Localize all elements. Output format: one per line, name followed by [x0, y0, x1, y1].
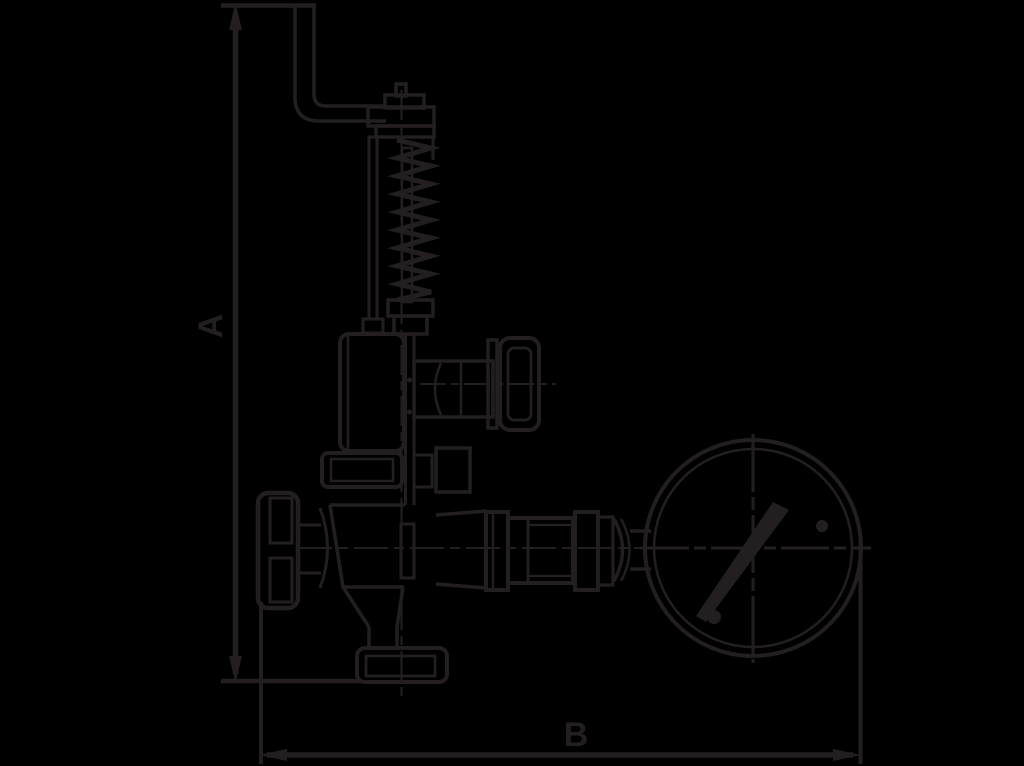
main-handwheel-inner-top — [270, 498, 292, 543]
union-barrel — [508, 518, 573, 583]
lever-inner-edge — [314, 4, 386, 106]
upper-flange-inner — [331, 459, 393, 481]
dimension-b-arrow-left-icon — [259, 749, 287, 761]
valve-dimension-drawing: A B — [0, 0, 1024, 766]
yoke-rod-foot — [363, 319, 383, 333]
outlet-flange — [486, 512, 508, 590]
upper-body-flange — [322, 448, 470, 492]
lever-outer-edge — [295, 4, 386, 121]
technical-drawing-canvas: A B — [0, 0, 1024, 766]
union-ring-1 — [575, 512, 598, 590]
union-nut-curve-outer — [614, 519, 623, 581]
spring-neck — [394, 316, 427, 334]
dimension-a-label: A — [192, 314, 230, 339]
body-cone-and-stem — [343, 587, 403, 650]
valve-stem-insert — [401, 524, 414, 578]
centerlines — [298, 90, 648, 700]
dimension-b-label: B — [564, 716, 589, 754]
page: { "figure": { "kind": "technical-dimensi… — [0, 0, 1024, 766]
housing-yoke-rod — [369, 137, 377, 319]
column-stud-top — [407, 378, 412, 383]
union-barrel-inner-lines — [528, 525, 573, 576]
column-collar — [414, 455, 432, 487]
column-stud-bottom — [407, 410, 412, 415]
dimension-b-arrow-right-icon — [833, 749, 861, 761]
union-ring-2 — [598, 517, 613, 585]
main-handwheel-inner-bottom — [270, 558, 292, 602]
spring-housing — [363, 137, 433, 334]
gauge-dot-right — [816, 520, 828, 532]
cap-flange-lower — [376, 126, 434, 137]
main-body — [258, 493, 447, 682]
branch-curve — [435, 363, 441, 415]
gauge-needle — [696, 502, 789, 622]
gauge-dot-left — [707, 610, 721, 624]
outlet-piping — [436, 511, 651, 590]
pressure-gauge — [641, 434, 871, 663]
lifting-lever — [295, 4, 386, 121]
body-outline — [330, 505, 405, 587]
outlet-cone-lines — [436, 511, 486, 588]
outlet-upper-block — [436, 448, 470, 492]
bonnet-block — [340, 334, 404, 451]
branch-body — [414, 361, 493, 417]
